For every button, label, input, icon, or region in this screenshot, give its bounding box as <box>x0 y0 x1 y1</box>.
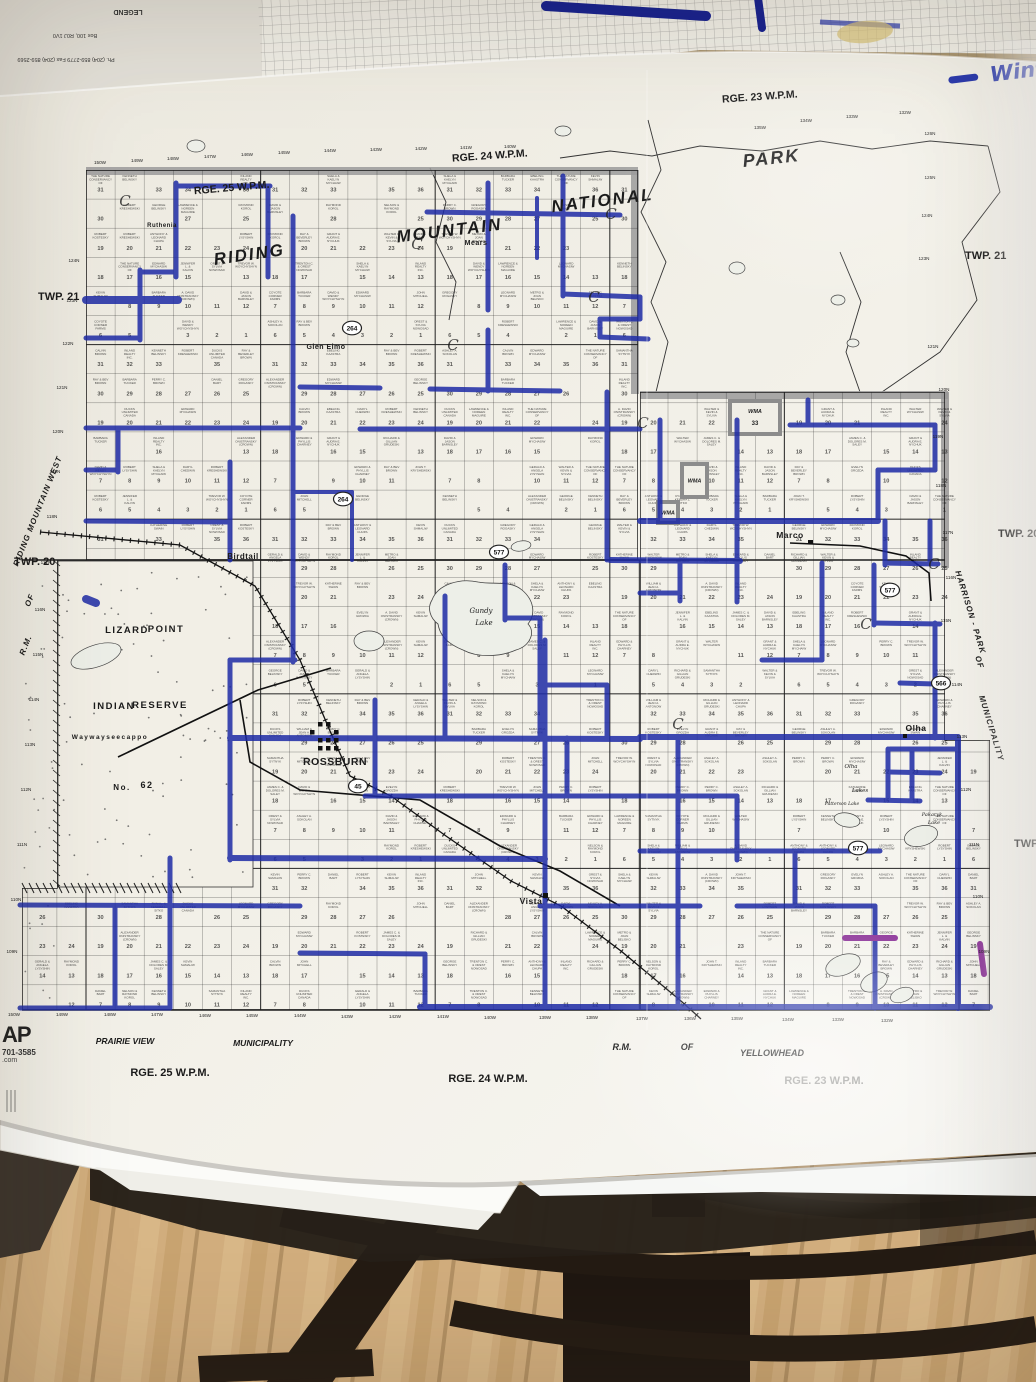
map-graphic: BARBARATUCKER <box>763 494 777 501</box>
map-graphic: 22 <box>359 420 365 426</box>
map-graphic: 28 <box>330 915 336 921</box>
map-graphic: 31 <box>447 188 453 194</box>
map-graphic: 2 <box>739 682 742 688</box>
map-graphic: 8 <box>826 653 829 659</box>
map-graphic: 24 <box>592 944 599 950</box>
map-graphic: KOROL <box>328 207 339 211</box>
map-graphic <box>226 783 228 785</box>
map-graphic: 35 <box>563 886 569 892</box>
map-graphic <box>69 716 71 718</box>
map-graphic: WOYCHYSHYN <box>934 992 956 996</box>
reserve-label: Waywayseecappo <box>72 734 148 741</box>
map-graphic: EDWARD &PHYLLISCHARNEY <box>936 698 952 709</box>
map-graphic: CHARNEY <box>355 472 370 476</box>
map-graphic: 29 <box>301 391 307 397</box>
map-graphic: SHMALIW <box>414 643 428 647</box>
map-graphic: 16 <box>854 973 860 979</box>
map-graphic: SALEY <box>736 617 746 621</box>
map-graphic: 23 <box>738 770 744 776</box>
tick-right: 111N <box>969 842 979 847</box>
map-graphic: 3 <box>710 682 713 688</box>
map-graphic: 11 <box>389 304 395 310</box>
map-graphic: SYTNYK <box>618 352 630 356</box>
map-graphic: 27 <box>883 915 889 921</box>
map-graphic: 11 <box>214 304 220 310</box>
map-graphic: CHARNEY <box>908 967 923 971</box>
map-graphic: ROBERTKOSTESKY <box>500 756 516 763</box>
map-graphic: SOKOLAN <box>733 789 748 793</box>
map-graphic <box>29 729 31 731</box>
tick-right: 120N <box>939 387 950 392</box>
map-graphic: NOWOSAD <box>267 821 284 825</box>
map-graphic: 23 <box>388 246 394 252</box>
map-graphic: 18 <box>796 799 802 805</box>
map-graphic: KALVIN <box>677 617 687 621</box>
map-graphic: 25 <box>418 566 424 572</box>
map-graphic <box>29 922 31 924</box>
map-graphic: SWAIN <box>154 527 164 531</box>
map-graphic: INC. <box>592 646 598 650</box>
publisher-phone: 701-3585 <box>2 1048 36 1057</box>
map-graphic <box>334 738 339 743</box>
map-graphic: 13 <box>243 449 249 455</box>
map-graphic: 32 <box>825 711 831 717</box>
map-graphic: SHELA &KAELYNMYCHAIW <box>443 174 458 185</box>
publisher-web: .com <box>2 1057 36 1064</box>
map-graphic: 23 <box>388 420 394 426</box>
map-graphic: 29 <box>301 566 307 572</box>
map-graphic: (CROWN) <box>385 646 399 650</box>
map-graphic: 36 <box>243 537 249 543</box>
map-graphic: ROBERTLYSYSHIN <box>181 523 196 530</box>
map-graphic: GRANT &AUDRA E.NYCHUK <box>908 436 922 447</box>
map-graphic: 30 <box>621 391 627 397</box>
map-graphic <box>52 767 54 769</box>
map-graphic: 6 <box>623 508 626 514</box>
map-graphic: 34 <box>359 362 366 368</box>
map-graphic: BELINSKY <box>559 498 574 502</box>
map-graphic: SHELA &KAELYNMYCHAIW <box>530 581 545 592</box>
bottom-municipality-label: RGE. 24 W.P.M. <box>448 1073 527 1085</box>
map-graphic <box>151 655 153 657</box>
map-graphic: MYCHAIW <box>617 879 632 883</box>
map-graphic: SOKOLAN <box>966 905 981 909</box>
map-graphic: CHARNEY <box>617 646 632 650</box>
map-graphic: KRESHEWSKI <box>411 352 431 356</box>
map-graphic: WOYCHYSHYN <box>177 326 199 330</box>
map-graphic: SAMANTHASYTNYK <box>267 756 284 763</box>
map-graphic <box>150 613 152 615</box>
tick-right: 116N <box>946 575 957 580</box>
map-graphic: 1 <box>244 508 247 514</box>
map-graphic: 21 <box>854 595 860 601</box>
upper-sheet-address: Box 100, R0J 1V0 <box>53 32 97 38</box>
map-graphic: 19 <box>970 770 976 776</box>
map-graphic: SYTNYK <box>269 759 281 763</box>
map-graphic: KENNETHBELINSKY <box>122 174 137 181</box>
map-graphic: 29 <box>301 740 307 746</box>
map-graphic: 16 <box>330 799 336 805</box>
map-graphic: ASHLEY A.SOKOLAN <box>879 872 894 879</box>
map-graphic: 36 <box>767 711 773 717</box>
map-graphic <box>164 871 166 873</box>
map-graphic: LYSYSHIN <box>530 908 545 912</box>
map-graphic: 19 <box>796 595 802 601</box>
map-graphic: 27 <box>534 915 540 921</box>
map-graphic: BROWN <box>153 381 165 385</box>
map-graphic: EBELINGKAASTRA <box>326 407 340 414</box>
blue-marker-route <box>874 623 940 624</box>
map-graphic: GERALD &ANGELALYSYSHIN <box>35 960 50 971</box>
map-graphic: NOWOSAD <box>587 705 604 709</box>
map-graphic: 36 <box>418 537 424 543</box>
map-graphic: 33 <box>156 188 162 194</box>
map-graphic: 25 <box>418 217 424 223</box>
map-graphic <box>81 764 83 766</box>
tick-bottom: 145W <box>246 1013 259 1018</box>
map-graphic: OF <box>942 501 946 505</box>
map-graphic: KOROL <box>590 850 601 854</box>
map-graphic: 10 <box>359 304 365 310</box>
map-graphic: TUCKER <box>473 730 486 734</box>
map-graphic: TUCKER <box>94 439 107 443</box>
map-graphic: LYSYSHIN <box>879 818 894 822</box>
map-graphic: BARBARATUCKER <box>93 436 107 443</box>
map-graphic: 18 <box>272 973 278 979</box>
tick-right: 123N <box>919 256 930 261</box>
map-graphic: NOWOSAD <box>587 879 604 883</box>
map-graphic: 32 <box>825 537 831 543</box>
map-graphic: RAY & BEVBROWN <box>93 378 109 385</box>
map-graphic: 10 <box>709 828 715 834</box>
map-graphic: 10 <box>709 479 715 485</box>
map-graphic: EVELYNGROZDA <box>851 465 864 472</box>
tick-bottom: 132W <box>881 1018 894 1023</box>
map-graphic: LYSYSHIN <box>355 876 370 880</box>
map-graphic: SOKOLAN <box>268 323 283 327</box>
map-graphic: 15 <box>359 449 365 455</box>
map-graphic: SHMALIW <box>268 876 282 880</box>
map-graphic: 20 <box>476 770 482 776</box>
map-graphic: KOSTESKY <box>92 236 108 240</box>
map-graphic: SYLVIA <box>386 239 396 243</box>
map-graphic: 18 <box>970 973 976 979</box>
map-graphic: KOROL <box>561 614 572 618</box>
map-graphic: 8 <box>652 479 655 485</box>
map-graphic: INC. <box>883 414 889 418</box>
map-graphic: GERALD &ANGELALYSYSHIN <box>529 523 544 534</box>
map-graphic: 18 <box>272 449 278 455</box>
map-graphic: SYTNYK <box>706 672 718 676</box>
map-graphic: NYCHUK <box>909 617 922 621</box>
map-graphic: ROBERTKOSTESKY <box>587 727 603 734</box>
map-graphic: BART <box>766 556 774 560</box>
map-graphic: ROBERTLYSYSHIN <box>850 494 865 501</box>
map-graphic: 8 <box>128 304 131 310</box>
map-graphic: RAY & BEVBROWN <box>296 320 312 327</box>
map-graphic: 18 <box>97 973 103 979</box>
map-graphic: INC. <box>418 268 424 272</box>
map-graphic: MYCHASIW <box>558 265 575 269</box>
map-graphic <box>228 637 230 639</box>
map-graphic: 20 <box>301 770 307 776</box>
map-graphic: EDWARD &PHYLLISCHARNEY <box>907 960 923 971</box>
map-graphic: MITCHELL <box>588 759 603 763</box>
map-graphic: KRYSHEWSKI <box>731 876 751 880</box>
map-graphic: 19 <box>447 944 453 950</box>
map-graphic <box>180 715 182 717</box>
map-graphic: 20 <box>650 944 656 950</box>
map-graphic <box>180 779 182 781</box>
map-graphic: KOSTESKY <box>92 498 108 502</box>
map-graphic: 24 <box>767 595 774 601</box>
map-graphic: 7 <box>274 828 277 834</box>
tick-top: 141W <box>460 145 473 150</box>
map-graphic: 28 <box>156 915 162 921</box>
map-graphic: OF <box>593 472 597 476</box>
map-graphic: PERRY C.BROWN <box>792 756 806 763</box>
map-graphic <box>53 945 55 947</box>
map-graphic: 5 <box>652 682 655 688</box>
map-graphic: EVELYNGROZDA <box>385 785 398 792</box>
map-graphic: 31 <box>272 886 278 892</box>
town-olha-block <box>903 734 907 738</box>
map-graphic: KALVIN <box>183 268 193 272</box>
tick-left: 114N <box>29 697 40 702</box>
map-graphic: 22 <box>185 246 191 252</box>
map-graphic: 11 <box>389 828 395 834</box>
tick-bottom: 139W <box>539 1015 552 1020</box>
map-graphic: WOYCHYSHYN <box>206 498 228 502</box>
map-graphic: 13 <box>592 275 598 281</box>
map-graphic: 14 <box>563 799 570 805</box>
lake-label: Patterson Lake <box>824 801 860 807</box>
map-graphic: BROWN <box>619 963 631 967</box>
map-graphic: 36 <box>941 886 947 892</box>
map-graphic: 2 <box>215 508 218 514</box>
map-graphic: 36 <box>418 886 424 892</box>
map-graphic: CHEDWIN <box>355 410 369 414</box>
handwritten-c-mark: C <box>588 288 600 306</box>
handwritten-c-mark: C <box>672 715 684 733</box>
blue-marker-route <box>20 905 300 906</box>
map-graphic: 21 <box>854 944 860 950</box>
map-graphic <box>180 756 182 758</box>
map-graphic: KOSTESKY <box>587 730 603 734</box>
tick-right: 112N <box>961 787 972 792</box>
map-graphic: 16 <box>156 973 162 979</box>
map-graphic: GRUDESKI <box>762 792 778 796</box>
map-graphic: MYCHASIW <box>820 527 837 531</box>
map-graphic: 35 <box>388 188 394 194</box>
map-graphic: KOROL <box>124 996 135 1000</box>
map-graphic: 6 <box>274 333 277 339</box>
map-graphic: 11 <box>563 653 569 659</box>
map-graphic: 29 <box>825 566 831 572</box>
map-graphic: BELINSKY <box>355 498 370 502</box>
tick-right: 125N <box>925 175 936 180</box>
map-graphic: GRANT &AUDRA E.NYCHUK <box>326 232 340 243</box>
map-graphic: LYSYSHIN <box>355 676 370 680</box>
map-graphic: 13 <box>243 973 249 979</box>
map-graphic: 28 <box>330 391 336 397</box>
map-graphic: 25 <box>941 740 947 746</box>
map-graphic: MYCHAIW <box>792 646 807 650</box>
map-graphic: CHUPA <box>561 588 571 592</box>
map-graphic: CALVINBROWN <box>299 407 311 414</box>
map-graphic: BELINSKY <box>268 672 283 676</box>
reserve-label: No. <box>113 783 130 792</box>
map-graphic: 17 <box>825 449 831 455</box>
map-graphic: TUCKER <box>560 818 573 822</box>
map-graphic: GRUDESKI <box>704 705 720 709</box>
map-graphic: 31 <box>272 711 278 717</box>
map-graphic: TRENTON C.& ORESTNOWOSAD <box>470 960 488 971</box>
map-graphic <box>140 855 142 857</box>
map-graphic: KOROL <box>328 556 339 560</box>
map-graphic: 21 <box>679 420 685 426</box>
map-graphic: 19 <box>621 944 627 950</box>
map-graphic: 20 <box>301 246 307 252</box>
map-graphic: 13 <box>418 449 424 455</box>
map-graphic: KENNETHBELINSKY <box>151 989 166 996</box>
tick-right: 121N <box>928 344 939 349</box>
map-graphic: 13 <box>592 624 598 630</box>
map-graphic: LYSYSHIN <box>937 847 952 851</box>
map-graphic: ROGASKY <box>442 294 457 298</box>
map-graphic: 20 <box>301 420 307 426</box>
map-graphic: GRANT &AUDRA E.NYCHUK <box>821 407 835 418</box>
map-graphic: RAY & BEVBROWN <box>355 581 371 588</box>
map-graphic: 3 <box>710 508 713 514</box>
map-graphic <box>29 928 31 930</box>
map-graphic: MYCHASIW <box>587 672 604 676</box>
map-graphic <box>122 843 124 845</box>
map-graphic: 8 <box>652 653 655 659</box>
map-graphic: TREVOR W.WOYCHYSHYN <box>904 902 926 909</box>
map-graphic: 35 <box>388 537 394 543</box>
map-graphic: 14 <box>214 973 221 979</box>
map-graphic: BART <box>213 381 221 385</box>
map-graphic <box>326 746 331 751</box>
handwritten-c-mark: C <box>119 192 131 210</box>
map-graphic: KALVIN <box>124 501 134 505</box>
map-graphic: BELISKO <box>531 297 545 301</box>
map-graphic: 19 <box>621 595 627 601</box>
map-graphic: CHEDWIN <box>704 527 718 531</box>
map-graphic: KOROL <box>852 527 863 531</box>
map-graphic: EDWARDMYCHASIW <box>529 552 546 559</box>
map-graphic: KAASTRA <box>326 410 340 414</box>
map-graphic: 17 <box>825 624 831 630</box>
map-graphic: KOSTESKY <box>587 556 603 560</box>
map-graphic <box>162 795 164 797</box>
map-graphic: MYCHASIW <box>296 934 313 938</box>
map-graphic: WOYCHYSHYN <box>497 789 519 793</box>
map-graphic: 28 <box>505 915 511 921</box>
map-graphic: 28 <box>854 915 860 921</box>
map-graphic: 6 <box>972 857 975 863</box>
map-graphic: 33 <box>505 188 511 194</box>
map-graphic: 23 <box>912 595 918 601</box>
map-graphic: BELINSKY <box>151 352 166 356</box>
map-graphic: 566 <box>936 680 947 687</box>
map-graphic: SOKOLAN <box>763 759 778 763</box>
map-graphic: GREGORYROGASKY <box>500 523 515 530</box>
map-graphic: 36 <box>418 711 424 717</box>
map-graphic <box>117 613 119 615</box>
map-graphic: 13 <box>941 973 947 979</box>
map-graphic: SITKO <box>154 908 164 912</box>
map-graphic: BELINSKY <box>151 207 166 211</box>
map-graphic: BELINSKY <box>792 730 807 734</box>
map-graphic: BROWN <box>386 352 398 356</box>
map-graphic: EDWARD &PHYLLISCHARNEY <box>704 989 720 1000</box>
map-graphic: GERALD &ANGELALYSYSHIN <box>268 552 283 563</box>
map-graphic: 36 <box>941 537 947 543</box>
map-graphic: 1 <box>768 857 771 863</box>
map-graphic: EVELYNGROZDA <box>356 611 369 618</box>
map-graphic: 19 <box>796 944 802 950</box>
map-graphic: (CROWN) <box>123 937 137 941</box>
map-graphic: 33 <box>505 362 511 368</box>
map-graphic: 32 <box>127 362 133 368</box>
map-graphic: 2 <box>390 682 393 688</box>
map-graphic: 20 <box>650 420 656 426</box>
map-graphic: 7 <box>972 828 975 834</box>
map-graphic: NYCHUK <box>327 443 340 447</box>
map-graphic: KOROL <box>474 705 485 709</box>
map-graphic: LEONARDMYCHASIW <box>558 261 575 268</box>
map-graphic: SHELA &KAELYNMYCHAIW <box>617 872 632 883</box>
map-graphic: TUCKER <box>298 294 311 298</box>
map-graphic: WMA <box>661 511 675 517</box>
map-graphic: BROWN <box>619 501 631 505</box>
map-graphic: 10 <box>359 479 365 485</box>
map-graphic: EDWARDMYCHASIW <box>849 756 866 763</box>
map-graphic: LYSYSHIN <box>355 996 370 1000</box>
map-graphic: 577 <box>853 845 864 852</box>
map-graphic: 13 <box>767 799 773 805</box>
map-graphic: 18 <box>796 973 802 979</box>
map-graphic: GRUDESKI <box>704 821 720 825</box>
map-graphic: SYTNYK <box>211 992 223 996</box>
handwritten-c-mark: C <box>637 414 649 432</box>
map-graphic: 1 <box>244 333 247 339</box>
map-graphic: KOROL <box>386 210 397 214</box>
map-graphic: 21 <box>330 595 336 601</box>
map-graphic: 33 <box>505 537 511 543</box>
map-graphic: 18 <box>272 275 278 281</box>
map-graphic: WOYCHYSHYN <box>730 527 752 531</box>
blue-marker-route <box>868 800 920 801</box>
map-graphic: 25 <box>592 217 598 223</box>
map-graphic: NOWOSAD <box>471 967 488 971</box>
map-graphic: NOWOSAD <box>296 268 313 272</box>
map-graphic: 34 <box>709 537 716 543</box>
map-graphic: MITCHELL <box>297 963 312 967</box>
map-graphic: TREVOR W.WOYCHYSHYN <box>497 785 519 792</box>
map-graphic <box>100 584 102 586</box>
tick-bottom: 138W <box>586 1015 599 1020</box>
map-graphic <box>6 1090 8 1112</box>
map-graphic: MYCHASIW <box>500 294 517 298</box>
map-graphic: BART <box>329 876 337 880</box>
map-graphic: 11 <box>214 479 220 485</box>
map-graphic: 29 <box>825 740 831 746</box>
blue-marker-route <box>86 521 230 522</box>
township-label: TWP. 21 <box>965 250 1006 262</box>
